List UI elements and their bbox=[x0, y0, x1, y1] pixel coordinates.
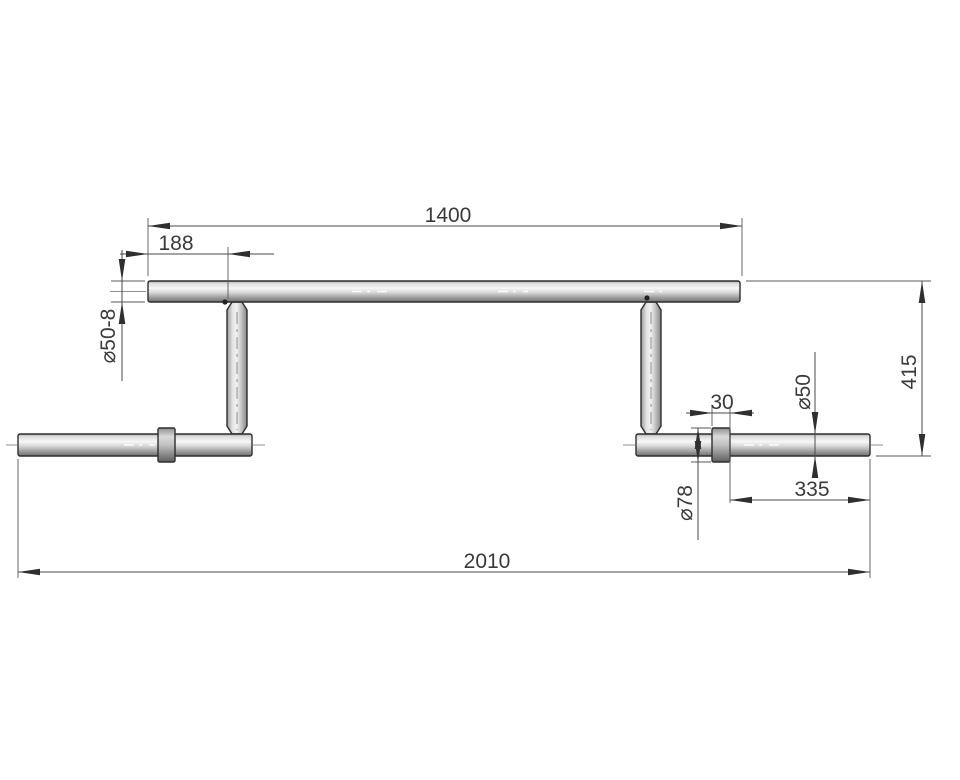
dim-crossbar-length: 1400 bbox=[148, 204, 742, 276]
dim-bar-diameter: ⌀50-8 bbox=[97, 250, 145, 381]
dim-sleeve-diameter-label: ⌀50 bbox=[792, 374, 815, 410]
right-collar bbox=[712, 428, 730, 462]
arrowhead bbox=[730, 497, 752, 504]
dim-end-offset-label: 188 bbox=[158, 232, 193, 255]
arrowhead bbox=[720, 223, 742, 230]
left-sleeve bbox=[18, 434, 252, 456]
weld-dot-left bbox=[222, 299, 227, 304]
centerlines bbox=[6, 292, 883, 446]
arrowhead bbox=[690, 410, 712, 417]
arrowhead bbox=[919, 434, 926, 456]
arrowhead bbox=[812, 456, 819, 478]
dim-crossbar-length-label: 1400 bbox=[425, 204, 472, 227]
arrowhead bbox=[228, 251, 250, 258]
left-collar bbox=[158, 428, 175, 462]
dim-collar-width-label: 30 bbox=[710, 391, 733, 414]
technical-drawing: 1400 188 ⌀50-8 415 ⌀50 bbox=[0, 0, 960, 780]
dim-overall-length-label: 2010 bbox=[464, 550, 511, 573]
arrowhead bbox=[126, 251, 148, 258]
arrowhead bbox=[18, 569, 40, 576]
dim-drop-height-label: 415 bbox=[898, 354, 921, 389]
dim-sleeve-length-label: 335 bbox=[794, 478, 829, 501]
arrowhead bbox=[848, 569, 870, 576]
dim-sleeve-length: 335 bbox=[730, 459, 870, 578]
arrowhead bbox=[812, 412, 819, 434]
arrowhead bbox=[148, 223, 170, 230]
weld-dot-right bbox=[644, 295, 649, 300]
arrowhead bbox=[919, 281, 926, 303]
drawing-canvas: 1400 188 ⌀50-8 415 ⌀50 bbox=[0, 0, 960, 780]
dim-sleeve-diameter: ⌀50 bbox=[792, 352, 818, 478]
dim-drop-height: 415 bbox=[746, 281, 931, 456]
bar-part bbox=[18, 281, 870, 462]
dim-overall-length: 2010 bbox=[18, 459, 870, 578]
dim-collar-diameter-label: ⌀78 bbox=[674, 485, 697, 521]
arrowhead bbox=[848, 497, 870, 504]
dim-bar-diameter-label: ⌀50-8 bbox=[97, 309, 120, 364]
arrowhead bbox=[119, 259, 126, 281]
